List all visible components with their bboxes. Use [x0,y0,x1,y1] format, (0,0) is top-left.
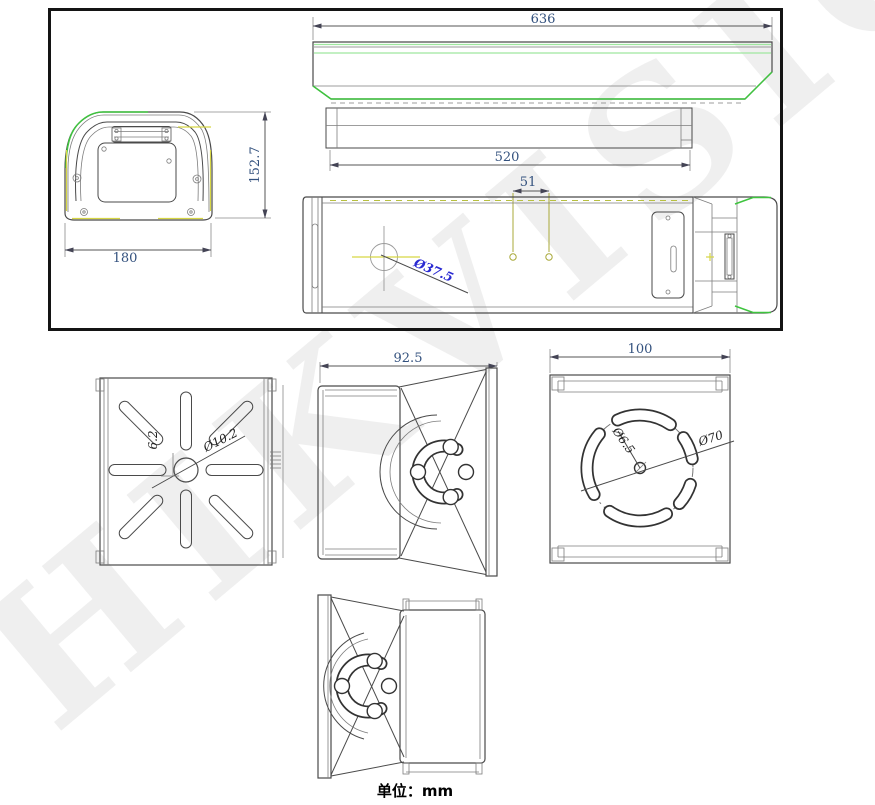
front-height-dim: 152.7 [248,146,263,183]
camera-base-block-bottom [400,599,485,774]
camera-base-block [318,386,400,559]
top-body-dim: 520 [495,150,520,165]
green-accent [66,112,148,168]
radial-slots [109,392,263,548]
plate-offset-dim: 6.2 [146,430,160,449]
top-overall-dim: 636 [531,12,556,27]
rear-door-plate [652,212,684,298]
bracket-wall-plate-view: Ø10.2 6.2 [85,370,295,575]
mount-hole-spacing-dim: 51 [520,175,537,190]
back-center-hole-label: Ø6.5 [609,424,638,457]
corner-screws [73,174,201,216]
housing-handle [112,127,171,143]
bracket-width-dim: 100 [628,342,653,357]
bracket-side-view: 92.5 [300,345,515,585]
front-bezel [693,197,771,313]
plate-center-hole [174,458,198,482]
housing-bottom-view: 51 Ø37.5 [300,174,785,324]
bracket-back-plate-view: 100 Ø6.5 Ø70 [535,340,765,575]
bracket-bottom-view [300,588,500,783]
housing-panel [98,143,176,202]
technical-drawing-page: HIKVISION [0,0,875,805]
housing-front-view: 152.7 180 [40,95,295,270]
plate-center-hole-label: Ø10.2 [200,426,240,456]
gusset [380,368,497,576]
lens-hole-dia-label: Ø37.5 [411,255,456,285]
unit-note: 单位：mm [330,780,500,801]
front-width-dim: 180 [113,251,138,266]
bracket-depth-dim: 92.5 [394,351,423,366]
slot-circle-label: Ø70 [696,428,726,449]
housing-top-view: 636 520 [300,10,785,180]
